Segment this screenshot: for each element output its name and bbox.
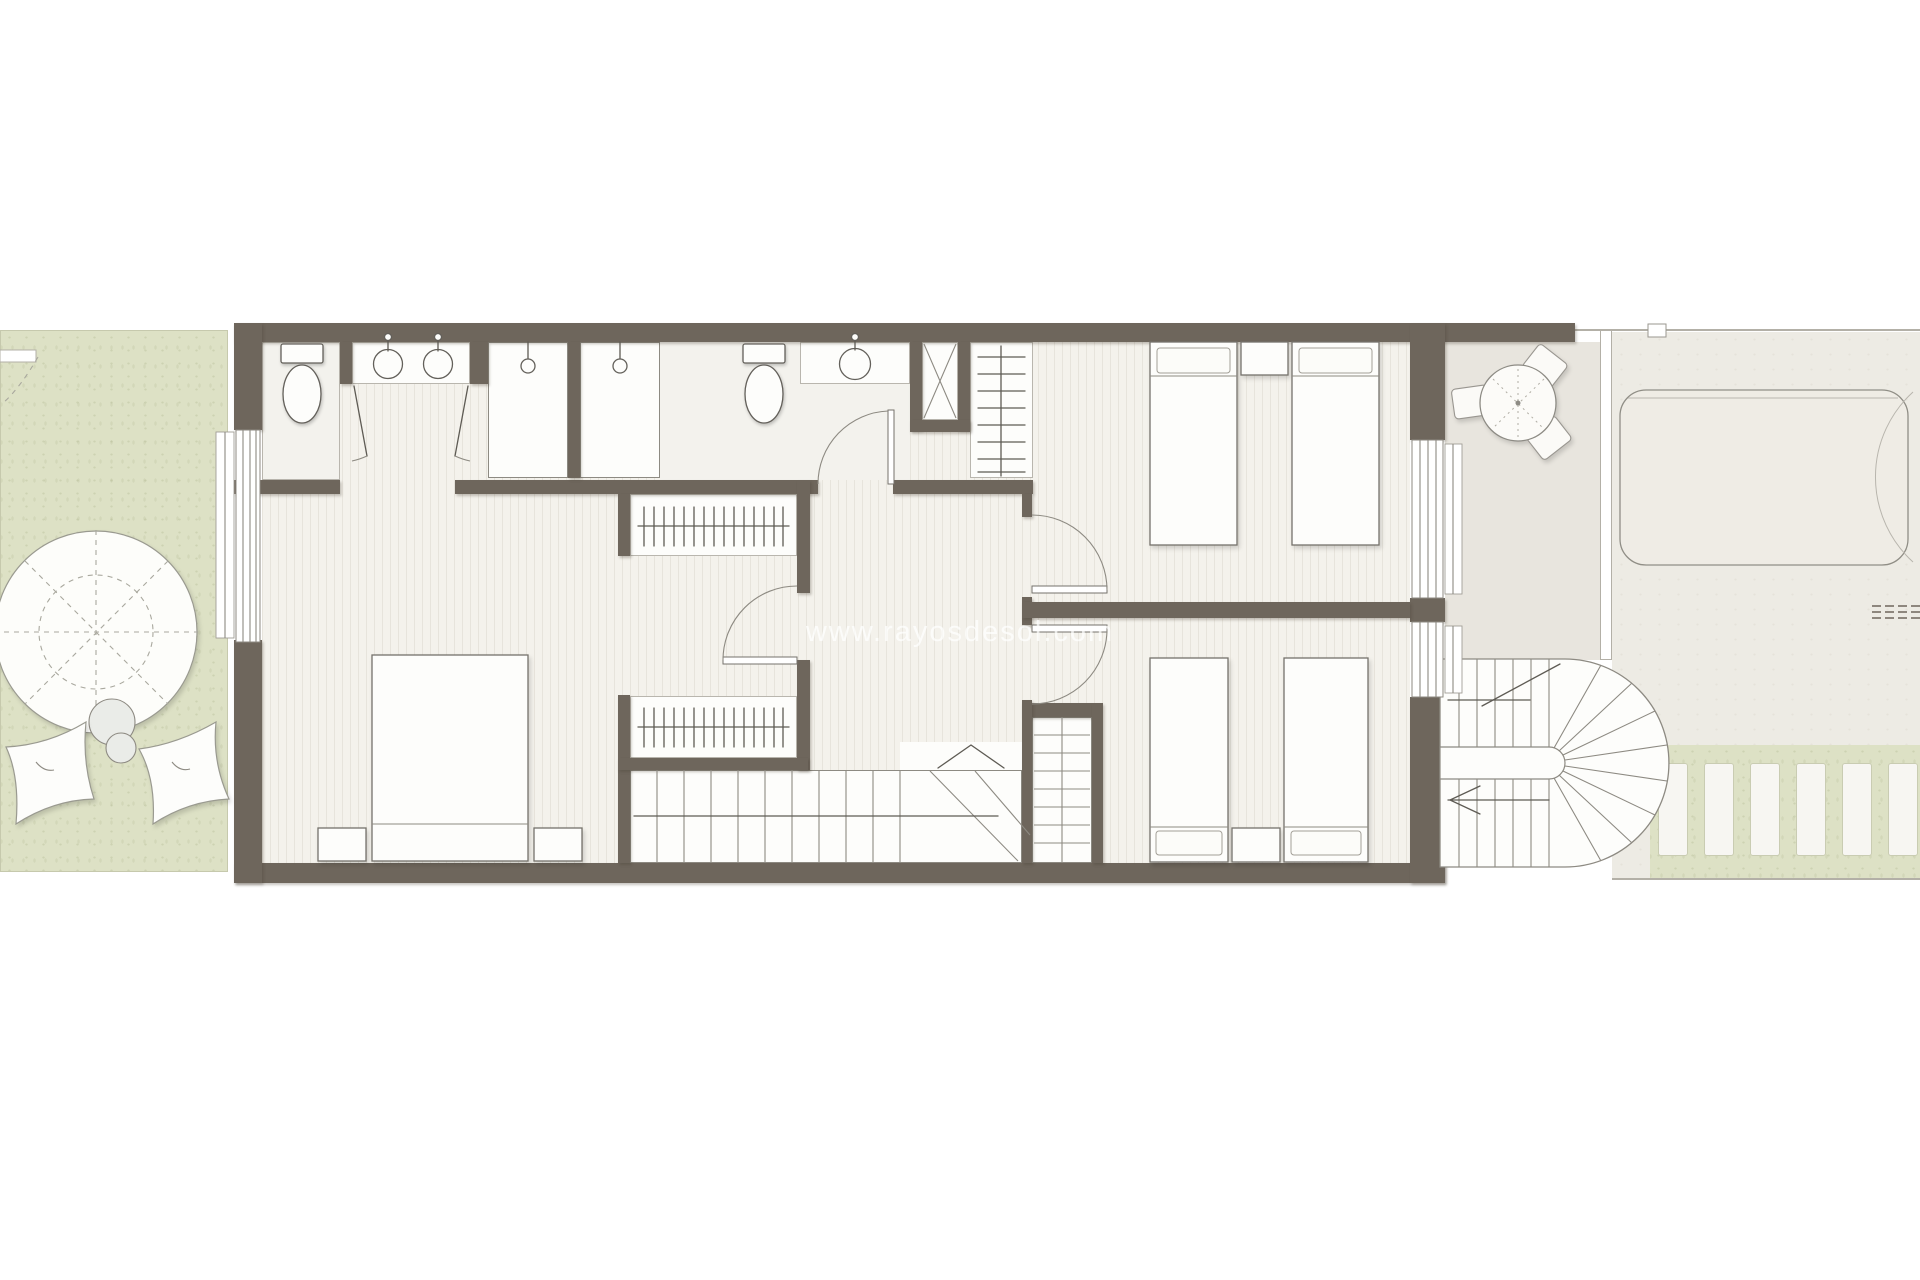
window-left [216,430,260,642]
internal-stair [634,717,1090,863]
nightstand [1232,828,1280,862]
bedroom3-beds [1150,658,1368,862]
external-stair [1440,659,1669,867]
floorplan-canvas: www.rayosdesol.com [0,0,1920,1280]
nightstand [1241,342,1288,375]
wardrobe-a-rod [638,507,789,546]
shaft-x-mark [924,344,956,418]
ladder-rack-icon [978,346,1025,476]
vent-grilles [1872,606,1920,618]
toilet-fixture-1 [281,344,323,423]
window-right-upper [1412,440,1462,598]
master-bed [318,655,582,861]
nightstand [318,828,366,861]
wardrobe-b-rod [638,708,789,747]
terrace-table-set [1451,343,1572,461]
pool-outline [1620,390,1913,565]
bedroom2-door [1032,515,1107,593]
shower1-door [455,386,470,461]
sink-fixtures-vanity1 [374,334,453,379]
boundary-gate-notch [1648,324,1666,337]
nightstand [534,828,582,861]
watermark: www.rayosdesol.com [800,616,1120,649]
sink-fixture-vanity2 [840,334,871,380]
garden-side-table-icon [89,699,136,763]
bathroom2-door [818,410,894,484]
toilet-fixture-2 [743,344,785,423]
wc-door [352,386,367,461]
shower-valves [521,342,627,373]
bedroom2-beds [1150,342,1379,545]
passage-door [723,586,797,664]
garden-path [0,350,38,403]
window-right-lower [1412,622,1462,697]
